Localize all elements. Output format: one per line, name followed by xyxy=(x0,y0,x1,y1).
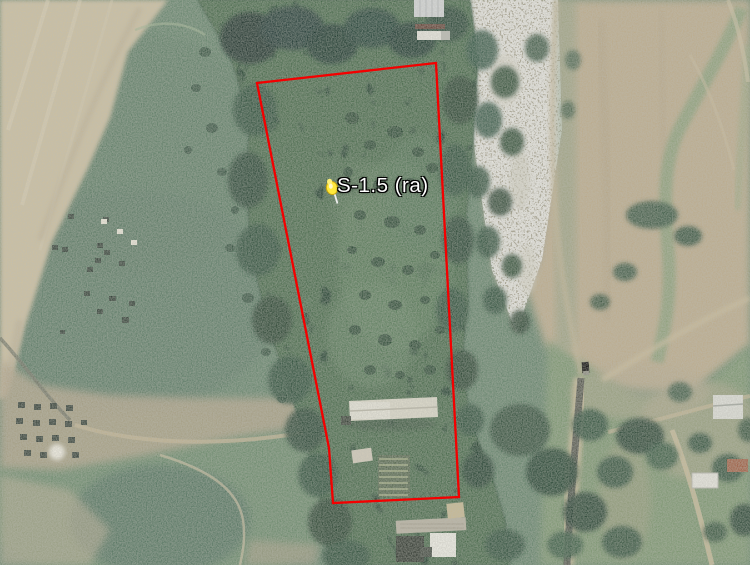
image-grain xyxy=(0,0,750,565)
placemark-label[interactable]: S-1.5 (ra) xyxy=(337,174,429,198)
satellite-map[interactable]: S-1.5 (ra) xyxy=(0,0,750,565)
satellite-imagery[interactable] xyxy=(0,0,750,565)
